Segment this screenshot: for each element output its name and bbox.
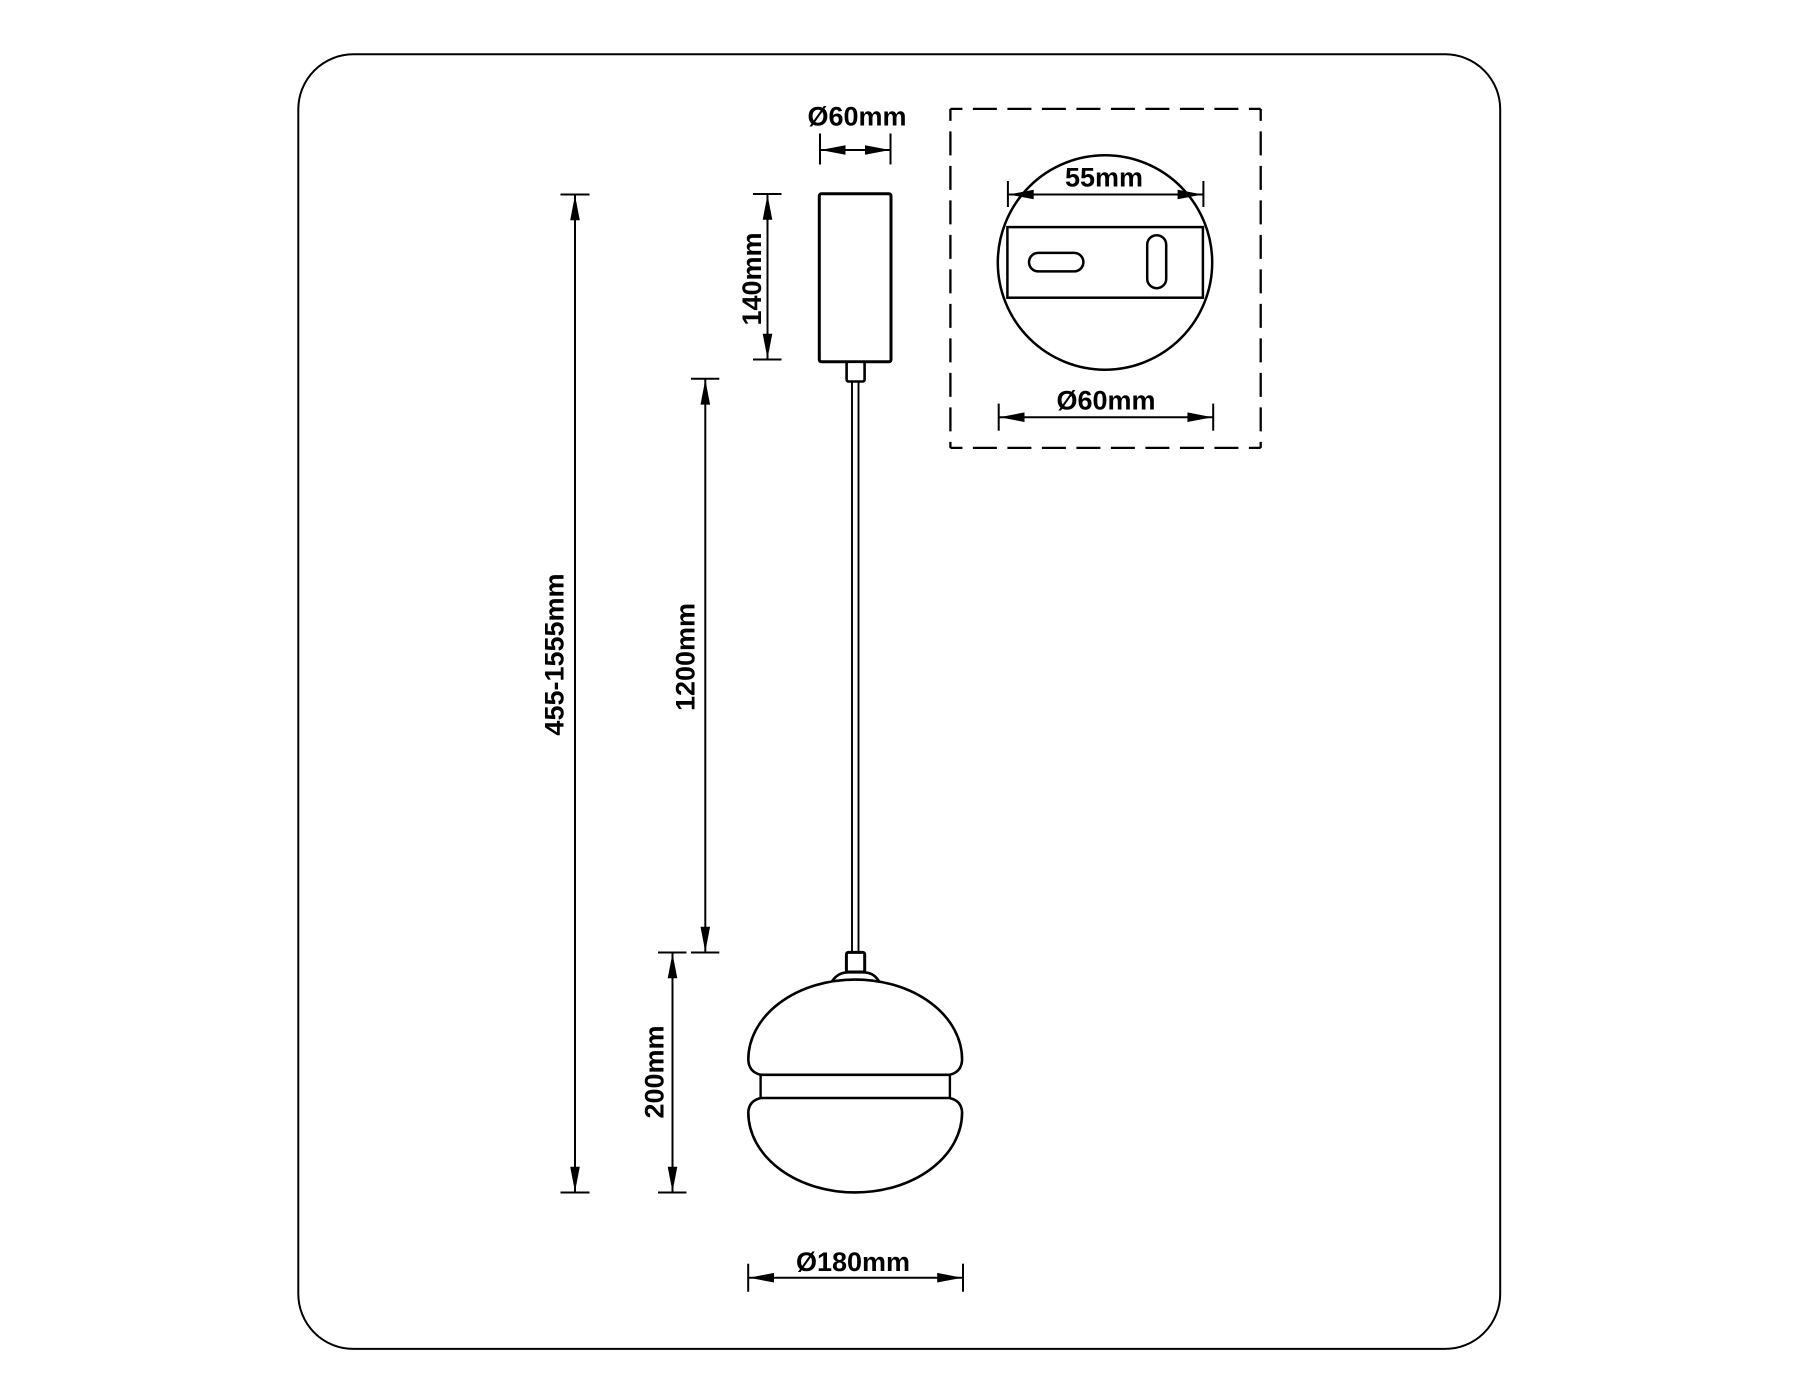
svg-text:200mm: 200mm <box>640 1025 670 1118</box>
svg-text:1200mm: 1200mm <box>671 603 701 711</box>
svg-text:455-1555mm: 455-1555mm <box>540 573 570 735</box>
svg-text:140mm: 140mm <box>737 232 767 325</box>
svg-text:55mm: 55mm <box>1065 163 1143 193</box>
svg-text:Ø60mm: Ø60mm <box>1056 386 1155 416</box>
svg-text:Ø60mm: Ø60mm <box>807 102 906 132</box>
svg-text:Ø180mm: Ø180mm <box>796 1247 910 1277</box>
